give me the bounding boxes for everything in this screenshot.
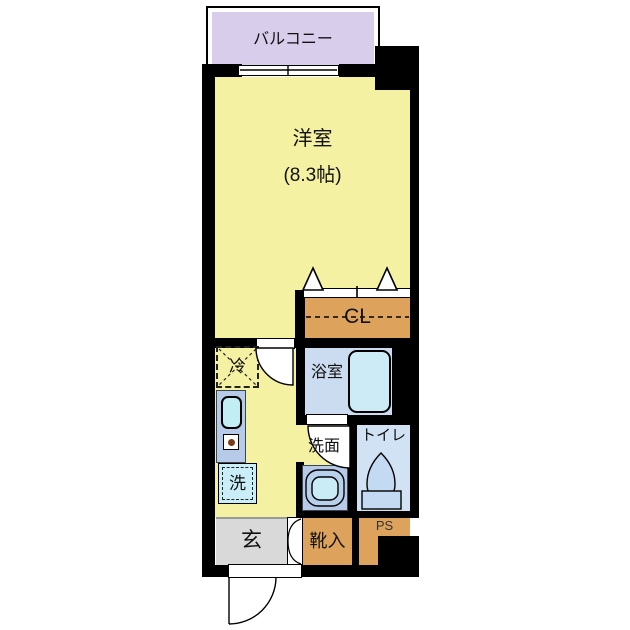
entrance-label: 玄 bbox=[216, 517, 287, 565]
entrance-doorway bbox=[228, 564, 302, 578]
pipe-space-label: PS bbox=[359, 517, 410, 535]
washroom-counter bbox=[302, 465, 348, 511]
wall-corner-block bbox=[375, 46, 419, 90]
fridge-label: 冷 bbox=[216, 346, 259, 388]
wall-right-bath bbox=[392, 348, 419, 418]
wall-right-lower bbox=[410, 418, 419, 518]
kitchen-sink bbox=[221, 396, 242, 429]
wall-bath-left bbox=[296, 348, 305, 425]
wall-washroom-toilet bbox=[348, 418, 357, 515]
wall-room-divider-right bbox=[295, 338, 419, 348]
shoe-storage-label: 靴入 bbox=[303, 518, 352, 565]
wall-shoe-right bbox=[352, 518, 359, 568]
kitchen-burner-icon bbox=[223, 434, 239, 450]
bathtub bbox=[348, 350, 391, 413]
toilet-label: トイレ bbox=[357, 427, 410, 445]
bathroom-door bbox=[306, 414, 348, 425]
closet-label: CL bbox=[305, 296, 410, 338]
entrance-door-arc bbox=[229, 578, 276, 624]
bathroom-label: 浴室 bbox=[303, 362, 351, 384]
main-room-size-label: (8.3帖) bbox=[214, 163, 411, 189]
folding-door-strip bbox=[287, 517, 303, 566]
room-door-leaf bbox=[256, 338, 295, 349]
floor-plan: バルコニー 洋室 (8.3帖) CL 冷 洗 浴室 洗面 トイレ 玄 靴入 PS bbox=[0, 0, 630, 630]
wall-right-upper bbox=[410, 88, 419, 348]
washer-label: 洗 bbox=[218, 463, 257, 504]
main-room-label: 洋室 bbox=[214, 125, 411, 153]
washroom-label: 洗面 bbox=[297, 436, 351, 458]
balcony-label: バルコニー bbox=[212, 12, 374, 68]
